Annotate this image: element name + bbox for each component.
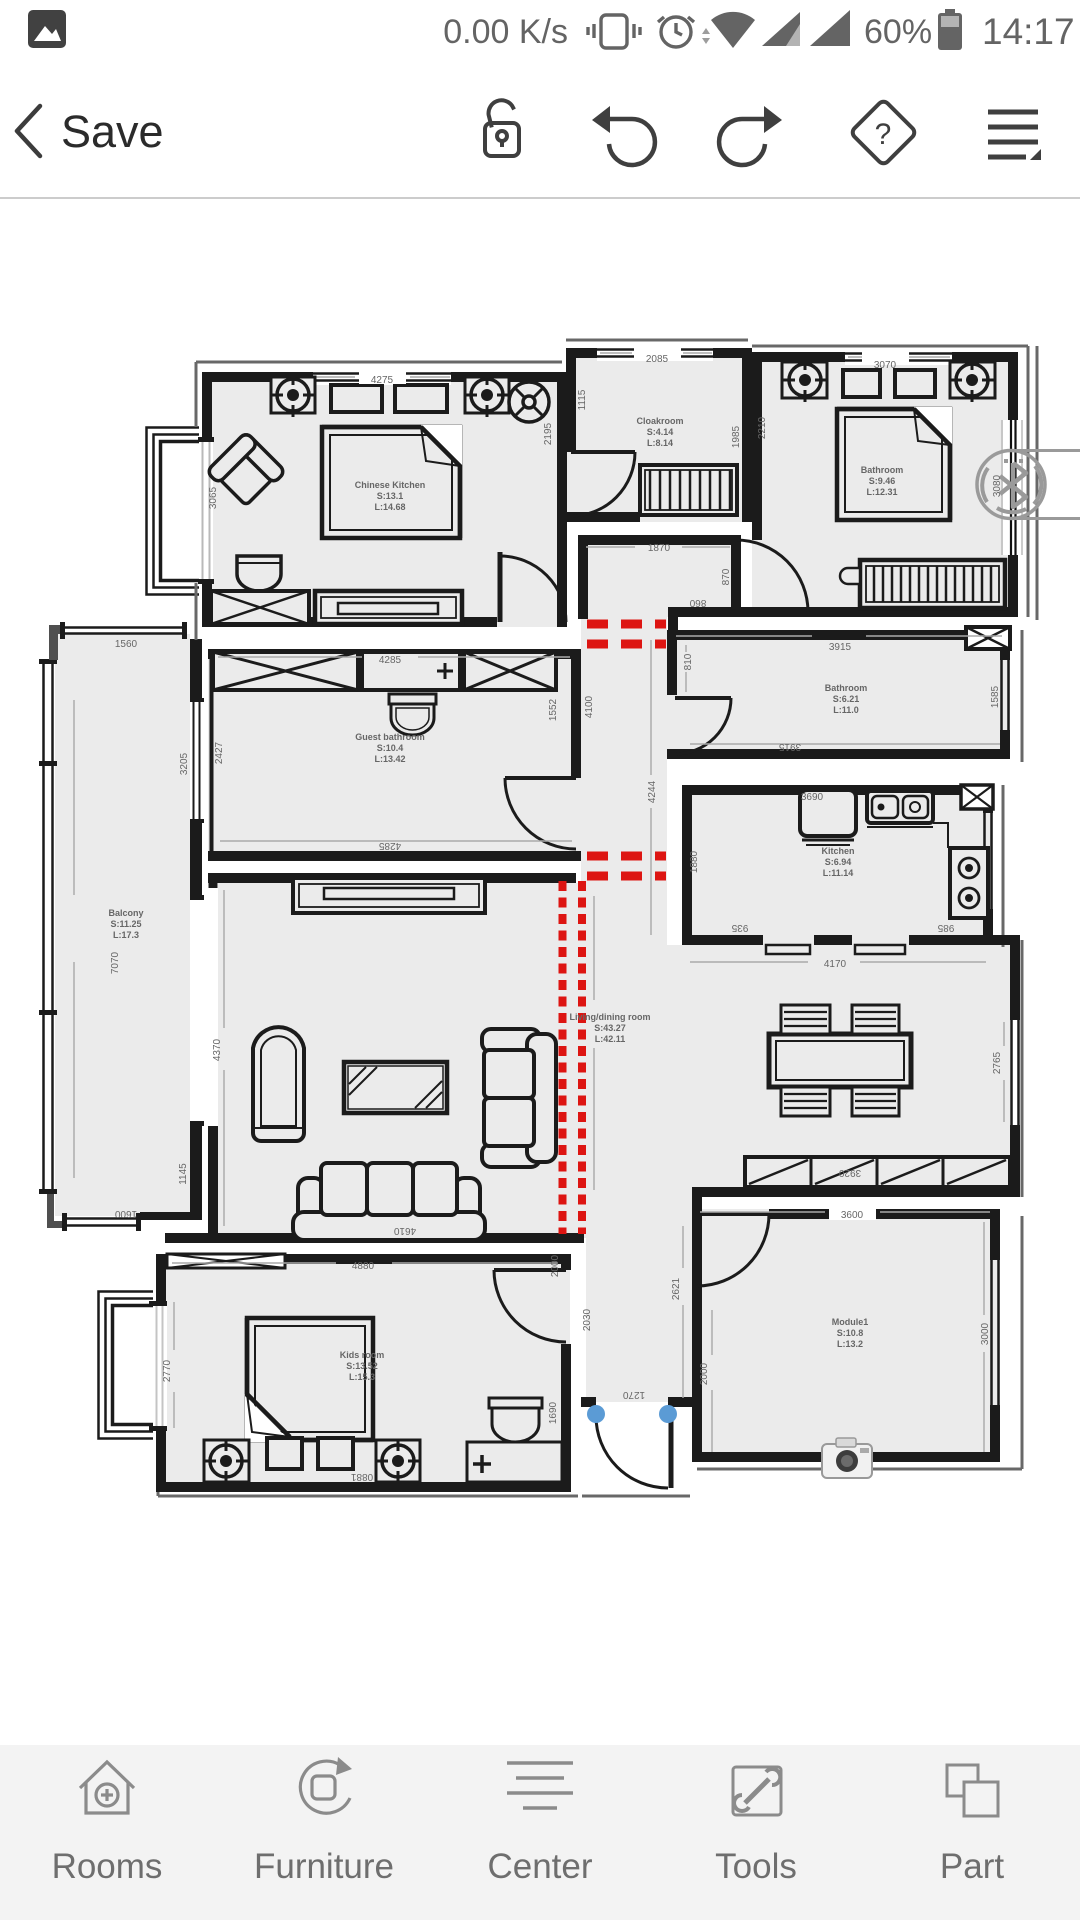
- svg-text:S:10.8: S:10.8: [837, 1328, 864, 1338]
- svg-text:7070: 7070: [110, 951, 121, 974]
- svg-text:L:14.68: L:14.68: [374, 502, 405, 512]
- svg-text:60%: 60%: [864, 13, 932, 51]
- svg-text:3205: 3205: [179, 752, 190, 775]
- svg-text:3915: 3915: [829, 642, 852, 653]
- svg-text:1585: 1585: [990, 685, 1001, 708]
- svg-text:L:13.42: L:13.42: [374, 754, 405, 764]
- svg-text:985: 985: [937, 922, 954, 933]
- svg-text:3690: 3690: [801, 792, 824, 803]
- svg-text:?: ?: [875, 118, 892, 151]
- svg-text:Kids room: Kids room: [340, 1350, 385, 1360]
- svg-text:Balcony: Balcony: [108, 908, 143, 918]
- svg-text:2770: 2770: [162, 1359, 173, 1382]
- svg-text:4244: 4244: [647, 780, 658, 803]
- svg-text:3915: 3915: [778, 741, 801, 752]
- svg-text:L:8.14: L:8.14: [647, 438, 673, 448]
- svg-text:4170: 4170: [824, 959, 847, 970]
- svg-text:4275: 4275: [371, 375, 394, 386]
- svg-text:S:6.94: S:6.94: [825, 857, 852, 867]
- svg-text:1985: 1985: [731, 425, 742, 448]
- svg-text:1560: 1560: [115, 639, 138, 650]
- svg-text:Save: Save: [61, 106, 164, 157]
- svg-text:L:17.3: L:17.3: [113, 930, 139, 940]
- svg-text:S:13.52: S:13.52: [346, 1361, 378, 1371]
- svg-text:Chinese Kitchen: Chinese Kitchen: [355, 480, 426, 490]
- svg-text:2000: 2000: [550, 1254, 561, 1277]
- svg-text:1870: 1870: [648, 543, 671, 554]
- svg-text:1115: 1115: [577, 389, 588, 410]
- svg-text:4285: 4285: [378, 840, 401, 851]
- svg-text:L:11.14: L:11.14: [823, 868, 854, 878]
- svg-text:3080: 3080: [992, 474, 1003, 497]
- svg-text:L:12.31: L:12.31: [866, 487, 897, 497]
- svg-text:935: 935: [731, 922, 748, 933]
- svg-text:S:43.27: S:43.27: [594, 1023, 626, 1033]
- svg-text:4370: 4370: [212, 1038, 223, 1061]
- svg-text:0.00 K/s: 0.00 K/s: [443, 13, 568, 51]
- svg-text:870: 870: [721, 568, 732, 585]
- svg-text:3920: 3920: [838, 1167, 861, 1178]
- svg-text:2210: 2210: [757, 416, 768, 439]
- svg-text:2621: 2621: [671, 1277, 682, 1300]
- svg-text:Guest bathroom: Guest bathroom: [355, 732, 425, 742]
- svg-text:Kitchen: Kitchen: [821, 846, 854, 856]
- svg-text:2427: 2427: [214, 741, 225, 764]
- svg-text:S:9.46: S:9.46: [869, 476, 896, 486]
- svg-text:3065: 3065: [208, 486, 219, 509]
- svg-text:L:15.3: L:15.3: [349, 1372, 375, 1382]
- svg-text:2030: 2030: [582, 1308, 593, 1331]
- svg-text:3070: 3070: [874, 360, 897, 371]
- svg-text:4100: 4100: [584, 695, 595, 718]
- svg-text:1145: 1145: [178, 1163, 189, 1185]
- svg-text:L:11.0: L:11.0: [833, 705, 859, 715]
- svg-text:810: 810: [683, 653, 694, 670]
- svg-text:S:13.1: S:13.1: [377, 491, 404, 501]
- svg-text:S:11.25: S:11.25: [110, 919, 141, 929]
- svg-text:Living/dining room: Living/dining room: [570, 1012, 651, 1022]
- svg-text:4285: 4285: [379, 655, 402, 666]
- svg-text:1600: 1600: [114, 1208, 137, 1219]
- svg-text:2195: 2195: [543, 422, 554, 445]
- svg-text:0881: 0881: [350, 1471, 373, 1482]
- svg-text:S:4.14: S:4.14: [647, 427, 674, 437]
- svg-text:S:6.21: S:6.21: [833, 694, 860, 704]
- svg-text:S:10.4: S:10.4: [377, 743, 404, 753]
- svg-text:14:17: 14:17: [982, 11, 1075, 52]
- svg-text:1270: 1270: [622, 1389, 645, 1400]
- svg-text:1552: 1552: [548, 698, 559, 721]
- svg-text:Bathroom: Bathroom: [825, 683, 868, 693]
- svg-text:1880: 1880: [689, 850, 700, 873]
- svg-text:3600: 3600: [841, 1210, 864, 1221]
- svg-text:4610: 4610: [393, 1225, 416, 1236]
- svg-text:860: 860: [689, 597, 706, 608]
- svg-text:3000: 3000: [980, 1322, 991, 1345]
- svg-text:2000: 2000: [699, 1362, 710, 1385]
- svg-text:2085: 2085: [646, 354, 669, 365]
- svg-text:1690: 1690: [548, 1401, 559, 1424]
- svg-text:Bathroom: Bathroom: [861, 465, 904, 475]
- svg-text:Cloakroom: Cloakroom: [636, 416, 683, 426]
- svg-text:L:13.2: L:13.2: [837, 1339, 863, 1349]
- svg-text:2765: 2765: [992, 1051, 1003, 1074]
- svg-text:Module1: Module1: [832, 1317, 869, 1327]
- svg-text:L:42.11: L:42.11: [595, 1034, 626, 1044]
- svg-text:4880: 4880: [352, 1261, 375, 1272]
